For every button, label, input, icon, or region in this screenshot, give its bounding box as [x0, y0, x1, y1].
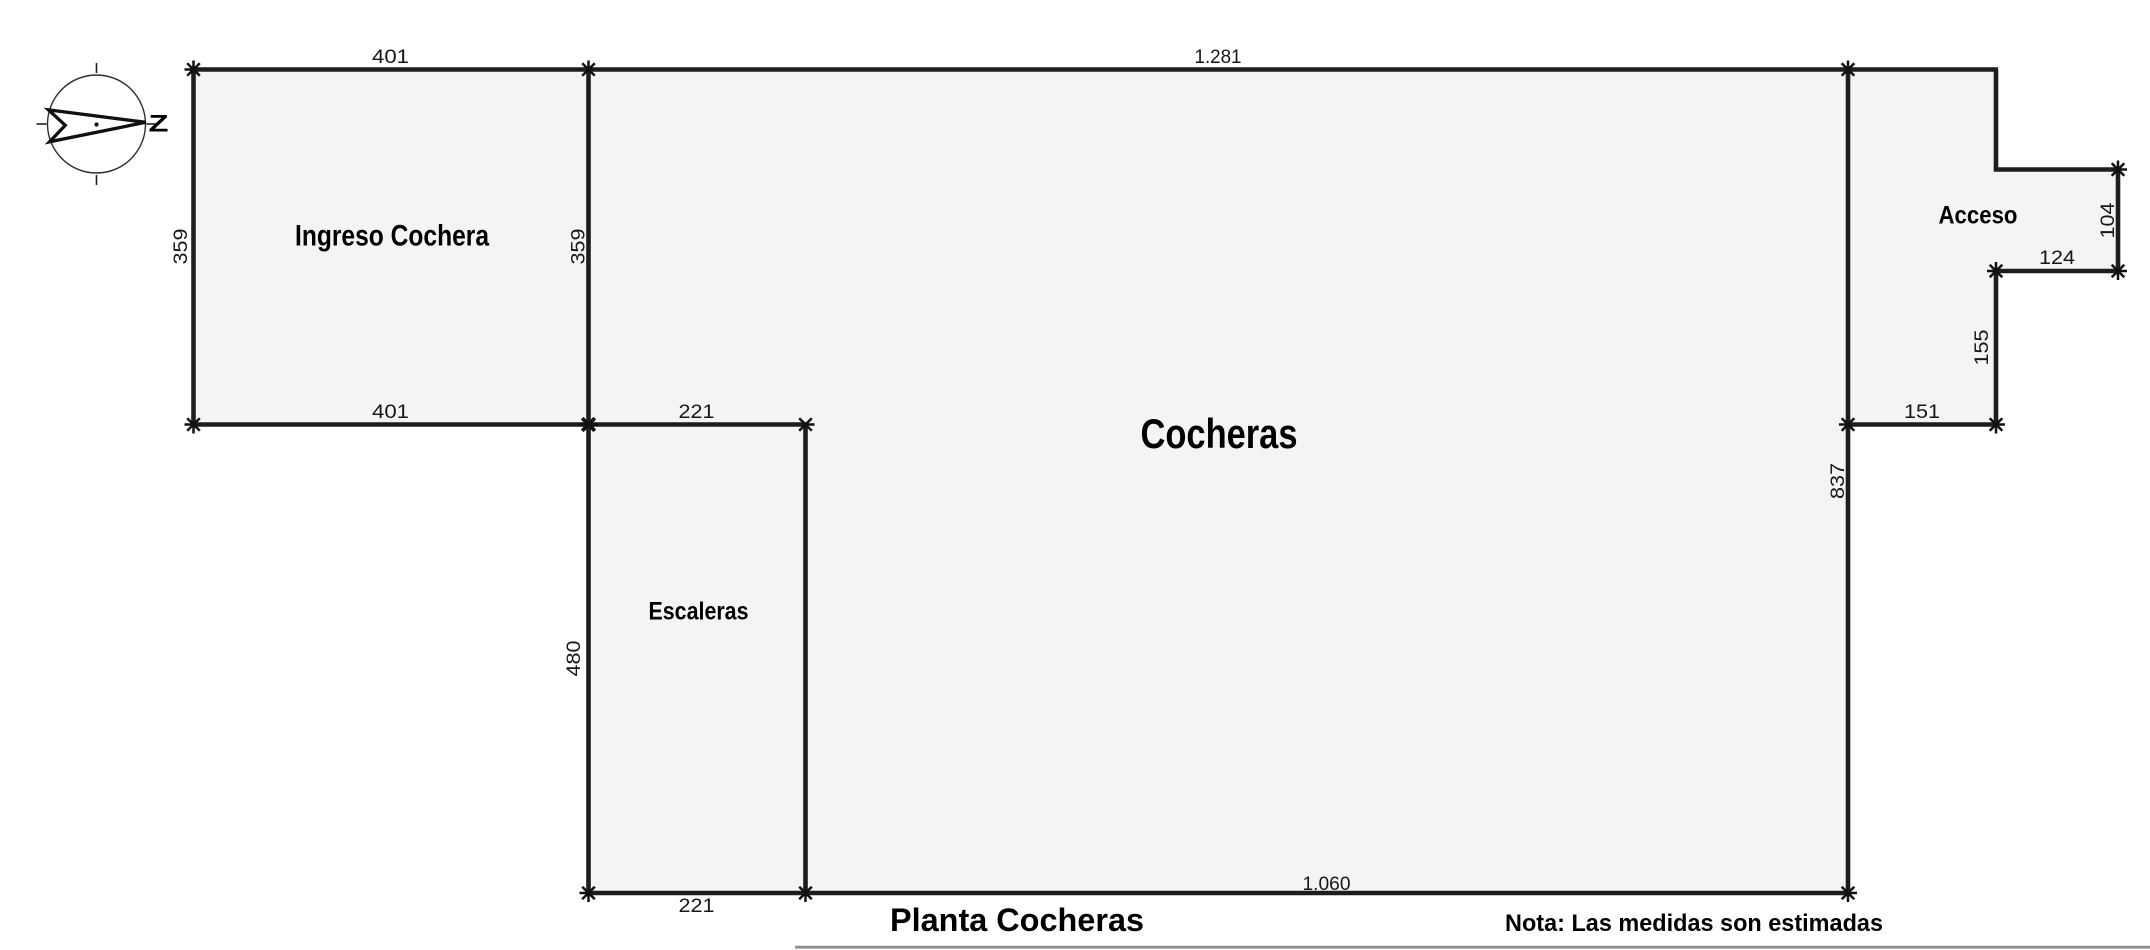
svg-text:359: 359 [171, 229, 192, 265]
svg-text:221: 221 [679, 402, 715, 423]
svg-text:1.060: 1.060 [1303, 874, 1351, 895]
svg-text:Escaleras: Escaleras [649, 598, 749, 626]
svg-text:Ingreso Cochera: Ingreso Cochera [295, 220, 489, 253]
svg-text:155: 155 [1972, 330, 1993, 366]
svg-text:Planta Cocheras: Planta Cocheras [890, 902, 1144, 938]
svg-text:Acceso: Acceso [1939, 202, 2018, 230]
svg-text:104: 104 [2098, 202, 2119, 238]
svg-text:480: 480 [564, 641, 585, 677]
svg-text:Nota: Las medidas son estimada: Nota: Las medidas son estimadas [1505, 910, 1883, 937]
svg-text:401: 401 [372, 47, 409, 68]
svg-text:124: 124 [2039, 248, 2075, 269]
svg-text:1.281: 1.281 [1195, 47, 1242, 68]
svg-text:Cocheras: Cocheras [1141, 410, 1298, 457]
svg-text:837: 837 [1828, 463, 1849, 499]
svg-text:151: 151 [1904, 402, 1940, 423]
svg-text:401: 401 [372, 402, 409, 423]
svg-text:359: 359 [569, 229, 590, 265]
svg-text:Z: Z [149, 111, 169, 138]
svg-text:221: 221 [679, 896, 715, 917]
